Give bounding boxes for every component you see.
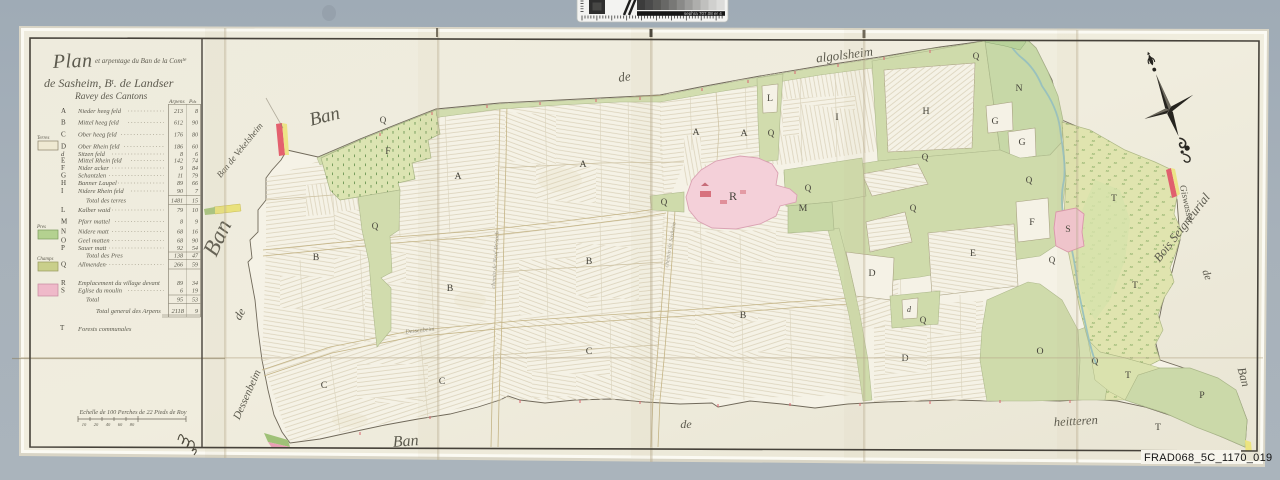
svg-text:Arpens: Arpens (168, 99, 185, 105)
svg-text:8: 8 (195, 109, 198, 115)
svg-text:8: 8 (180, 152, 183, 158)
svg-text:16: 16 (192, 230, 198, 236)
svg-text:de: de (617, 68, 631, 85)
svg-text:79: 79 (192, 174, 198, 180)
svg-text:Ravey des Cantons: Ravey des Cantons (74, 92, 148, 102)
svg-text:80: 80 (130, 422, 135, 427)
svg-text:6: 6 (180, 289, 183, 295)
svg-text:T: T (1155, 422, 1161, 433)
svg-text:60: 60 (118, 422, 123, 427)
svg-text:612: 612 (174, 121, 183, 127)
svg-text:266: 266 (174, 263, 183, 269)
svg-text:Mittel Rhein feld: Mittel Rhein feld (77, 158, 122, 165)
svg-text:Nidere Rhein feld: Nidere Rhein feld (77, 188, 124, 195)
svg-text:40: 40 (106, 422, 111, 427)
svg-text:53: 53 (192, 298, 198, 304)
svg-text:34: 34 (191, 280, 198, 287)
svg-text:92: 92 (177, 246, 183, 252)
svg-text:Ober heeg feld: Ober heeg feld (78, 132, 117, 139)
svg-text:213: 213 (174, 109, 183, 115)
svg-text:9: 9 (180, 166, 183, 172)
svg-text:T: T (1125, 370, 1131, 381)
svg-text:D: D (61, 143, 66, 151)
svg-text:176: 176 (174, 133, 183, 139)
svg-text:68: 68 (177, 230, 183, 236)
svg-text:H: H (922, 106, 929, 117)
svg-text:66: 66 (192, 181, 198, 187)
svg-text:1481: 1481 (171, 198, 183, 205)
svg-text:B: B (586, 256, 593, 267)
svg-text:A: A (454, 171, 461, 182)
svg-text:89: 89 (177, 181, 183, 187)
svg-text:et arpentage du Ban de la Comt: et arpentage du Ban de la Comte (95, 57, 187, 65)
svg-text:90: 90 (177, 189, 183, 195)
svg-text:E: E (970, 248, 976, 259)
svg-text:68: 68 (177, 239, 183, 245)
svg-text:T: T (1111, 193, 1117, 204)
svg-text:90: 90 (192, 239, 198, 245)
svg-text:89: 89 (177, 281, 183, 287)
svg-text:Total general des Arpens: Total general des Arpens (96, 308, 161, 315)
svg-text:I: I (835, 112, 838, 123)
svg-text:Banner Laupel: Banner Laupel (78, 180, 117, 187)
svg-text:Q: Q (920, 315, 927, 325)
svg-text:G: G (1018, 137, 1025, 148)
svg-text:9: 9 (195, 309, 198, 315)
svg-text:Q: Q (1026, 175, 1033, 185)
svg-text:Forests communales: Forests communales (77, 326, 132, 333)
svg-text:C: C (586, 346, 593, 357)
svg-text:Pres: Pres (36, 225, 46, 230)
svg-text:60: 60 (192, 145, 198, 151)
svg-text:Kalber waid: Kalber waid (77, 207, 111, 214)
svg-text:Champs: Champs (37, 257, 53, 262)
svg-text:186: 186 (174, 145, 183, 151)
svg-text:A: A (579, 159, 586, 170)
svg-text:8: 8 (180, 220, 183, 226)
svg-text:H: H (61, 179, 66, 187)
svg-text:Q: Q (922, 152, 929, 162)
svg-text:T: T (1132, 280, 1138, 291)
svg-text:15: 15 (192, 199, 198, 205)
svg-text:Q: Q (973, 51, 980, 61)
svg-text:79: 79 (177, 208, 183, 214)
svg-text:142: 142 (174, 158, 183, 165)
svg-text:Plan: Plan (51, 50, 93, 73)
svg-text:P: P (61, 244, 65, 252)
svg-text:Total: Total (86, 297, 99, 304)
svg-text:19: 19 (192, 289, 198, 295)
svg-text:B: B (740, 310, 747, 321)
svg-text:Q: Q (1049, 255, 1056, 265)
svg-text:D: D (868, 268, 875, 279)
svg-text:Schantzlen: Schantzlen (78, 173, 106, 180)
svg-text:Q: Q (61, 261, 66, 269)
svg-text:FRAD068_5C_1170_019: FRAD068_5C_1170_019 (1144, 452, 1272, 464)
svg-text:11: 11 (177, 174, 183, 180)
svg-text:O: O (1036, 346, 1043, 357)
svg-text:84: 84 (192, 165, 198, 172)
svg-text:10: 10 (82, 422, 87, 427)
svg-text:54: 54 (192, 245, 198, 252)
svg-text:L: L (767, 93, 773, 104)
svg-text:10: 10 (192, 208, 198, 214)
svg-text:Q: Q (910, 203, 917, 213)
svg-text:Q: Q (768, 128, 775, 138)
svg-text:R: R (729, 189, 737, 203)
svg-text:Nieder heeg feld: Nieder heeg feld (77, 108, 122, 115)
svg-text:A: A (740, 128, 747, 139)
svg-text:L: L (61, 206, 65, 214)
svg-text:90: 90 (192, 121, 198, 127)
svg-text:B: B (447, 283, 454, 294)
svg-text:Q: Q (661, 197, 668, 207)
svg-text:6: 6 (195, 152, 198, 158)
svg-text:Allmenden: Allmenden (77, 262, 106, 269)
svg-text:138: 138 (174, 254, 183, 260)
svg-text:B: B (61, 119, 66, 127)
svg-text:N: N (1015, 83, 1022, 94)
svg-text:sephra 707.08 er 4: sephra 707.08 er 4 (684, 11, 722, 16)
svg-text:T: T (60, 324, 65, 332)
svg-text:M: M (61, 218, 68, 226)
svg-text:C: C (321, 380, 328, 391)
svg-text:Nider acker: Nider acker (77, 165, 109, 172)
svg-text:Terres: Terres (37, 136, 49, 141)
svg-text:80: 80 (192, 133, 198, 139)
svg-text:Pfarr mattel: Pfarr mattel (77, 219, 110, 226)
svg-text:Nidere matt: Nidere matt (77, 229, 109, 236)
svg-text:74: 74 (192, 158, 198, 165)
svg-text:Emplacement du village devant: Emplacement du village devant (77, 280, 160, 287)
svg-text:B: B (313, 252, 320, 263)
svg-text:2118: 2118 (171, 308, 184, 315)
svg-text:Q: Q (380, 115, 387, 125)
svg-text:Total des Pres: Total des Pres (86, 253, 123, 260)
svg-text:F: F (385, 146, 391, 157)
svg-text:A: A (692, 127, 699, 138)
svg-text:47: 47 (192, 253, 199, 260)
svg-text:20: 20 (94, 422, 99, 427)
svg-text:Geel matten: Geel matten (78, 238, 110, 245)
svg-text:N: N (61, 228, 66, 236)
svg-text:Mittel heeg feld: Mittel heeg feld (77, 120, 120, 127)
svg-text:Q: Q (805, 183, 812, 193)
svg-text:Sauer matt: Sauer matt (78, 245, 107, 252)
svg-text:Ober Rhein feld: Ober Rhein feld (78, 144, 120, 151)
svg-text:C: C (61, 131, 66, 139)
svg-text:de Sasheim, Bt. de Landser: de Sasheim, Bt. de Landser (44, 76, 174, 90)
svg-text:Total des terres: Total des terres (86, 198, 126, 205)
svg-text:Echelle de 100 Perches de 22 P: Echelle de 100 Perches de 22 Pieds de Ro… (79, 409, 187, 416)
svg-text:Q: Q (372, 221, 379, 231)
svg-text:95: 95 (177, 298, 183, 304)
svg-text:P: P (1199, 390, 1205, 401)
svg-text:9: 9 (195, 220, 198, 226)
svg-text:F: F (1029, 217, 1035, 228)
svg-text:59: 59 (192, 263, 198, 269)
svg-text:A: A (61, 107, 66, 115)
svg-text:C: C (439, 376, 446, 387)
svg-text:de: de (680, 417, 692, 431)
svg-text:Eglise du moulin: Eglise du moulin (77, 288, 122, 295)
svg-text:M: M (799, 203, 808, 214)
svg-text:G: G (991, 116, 998, 127)
svg-text:S: S (61, 287, 65, 295)
